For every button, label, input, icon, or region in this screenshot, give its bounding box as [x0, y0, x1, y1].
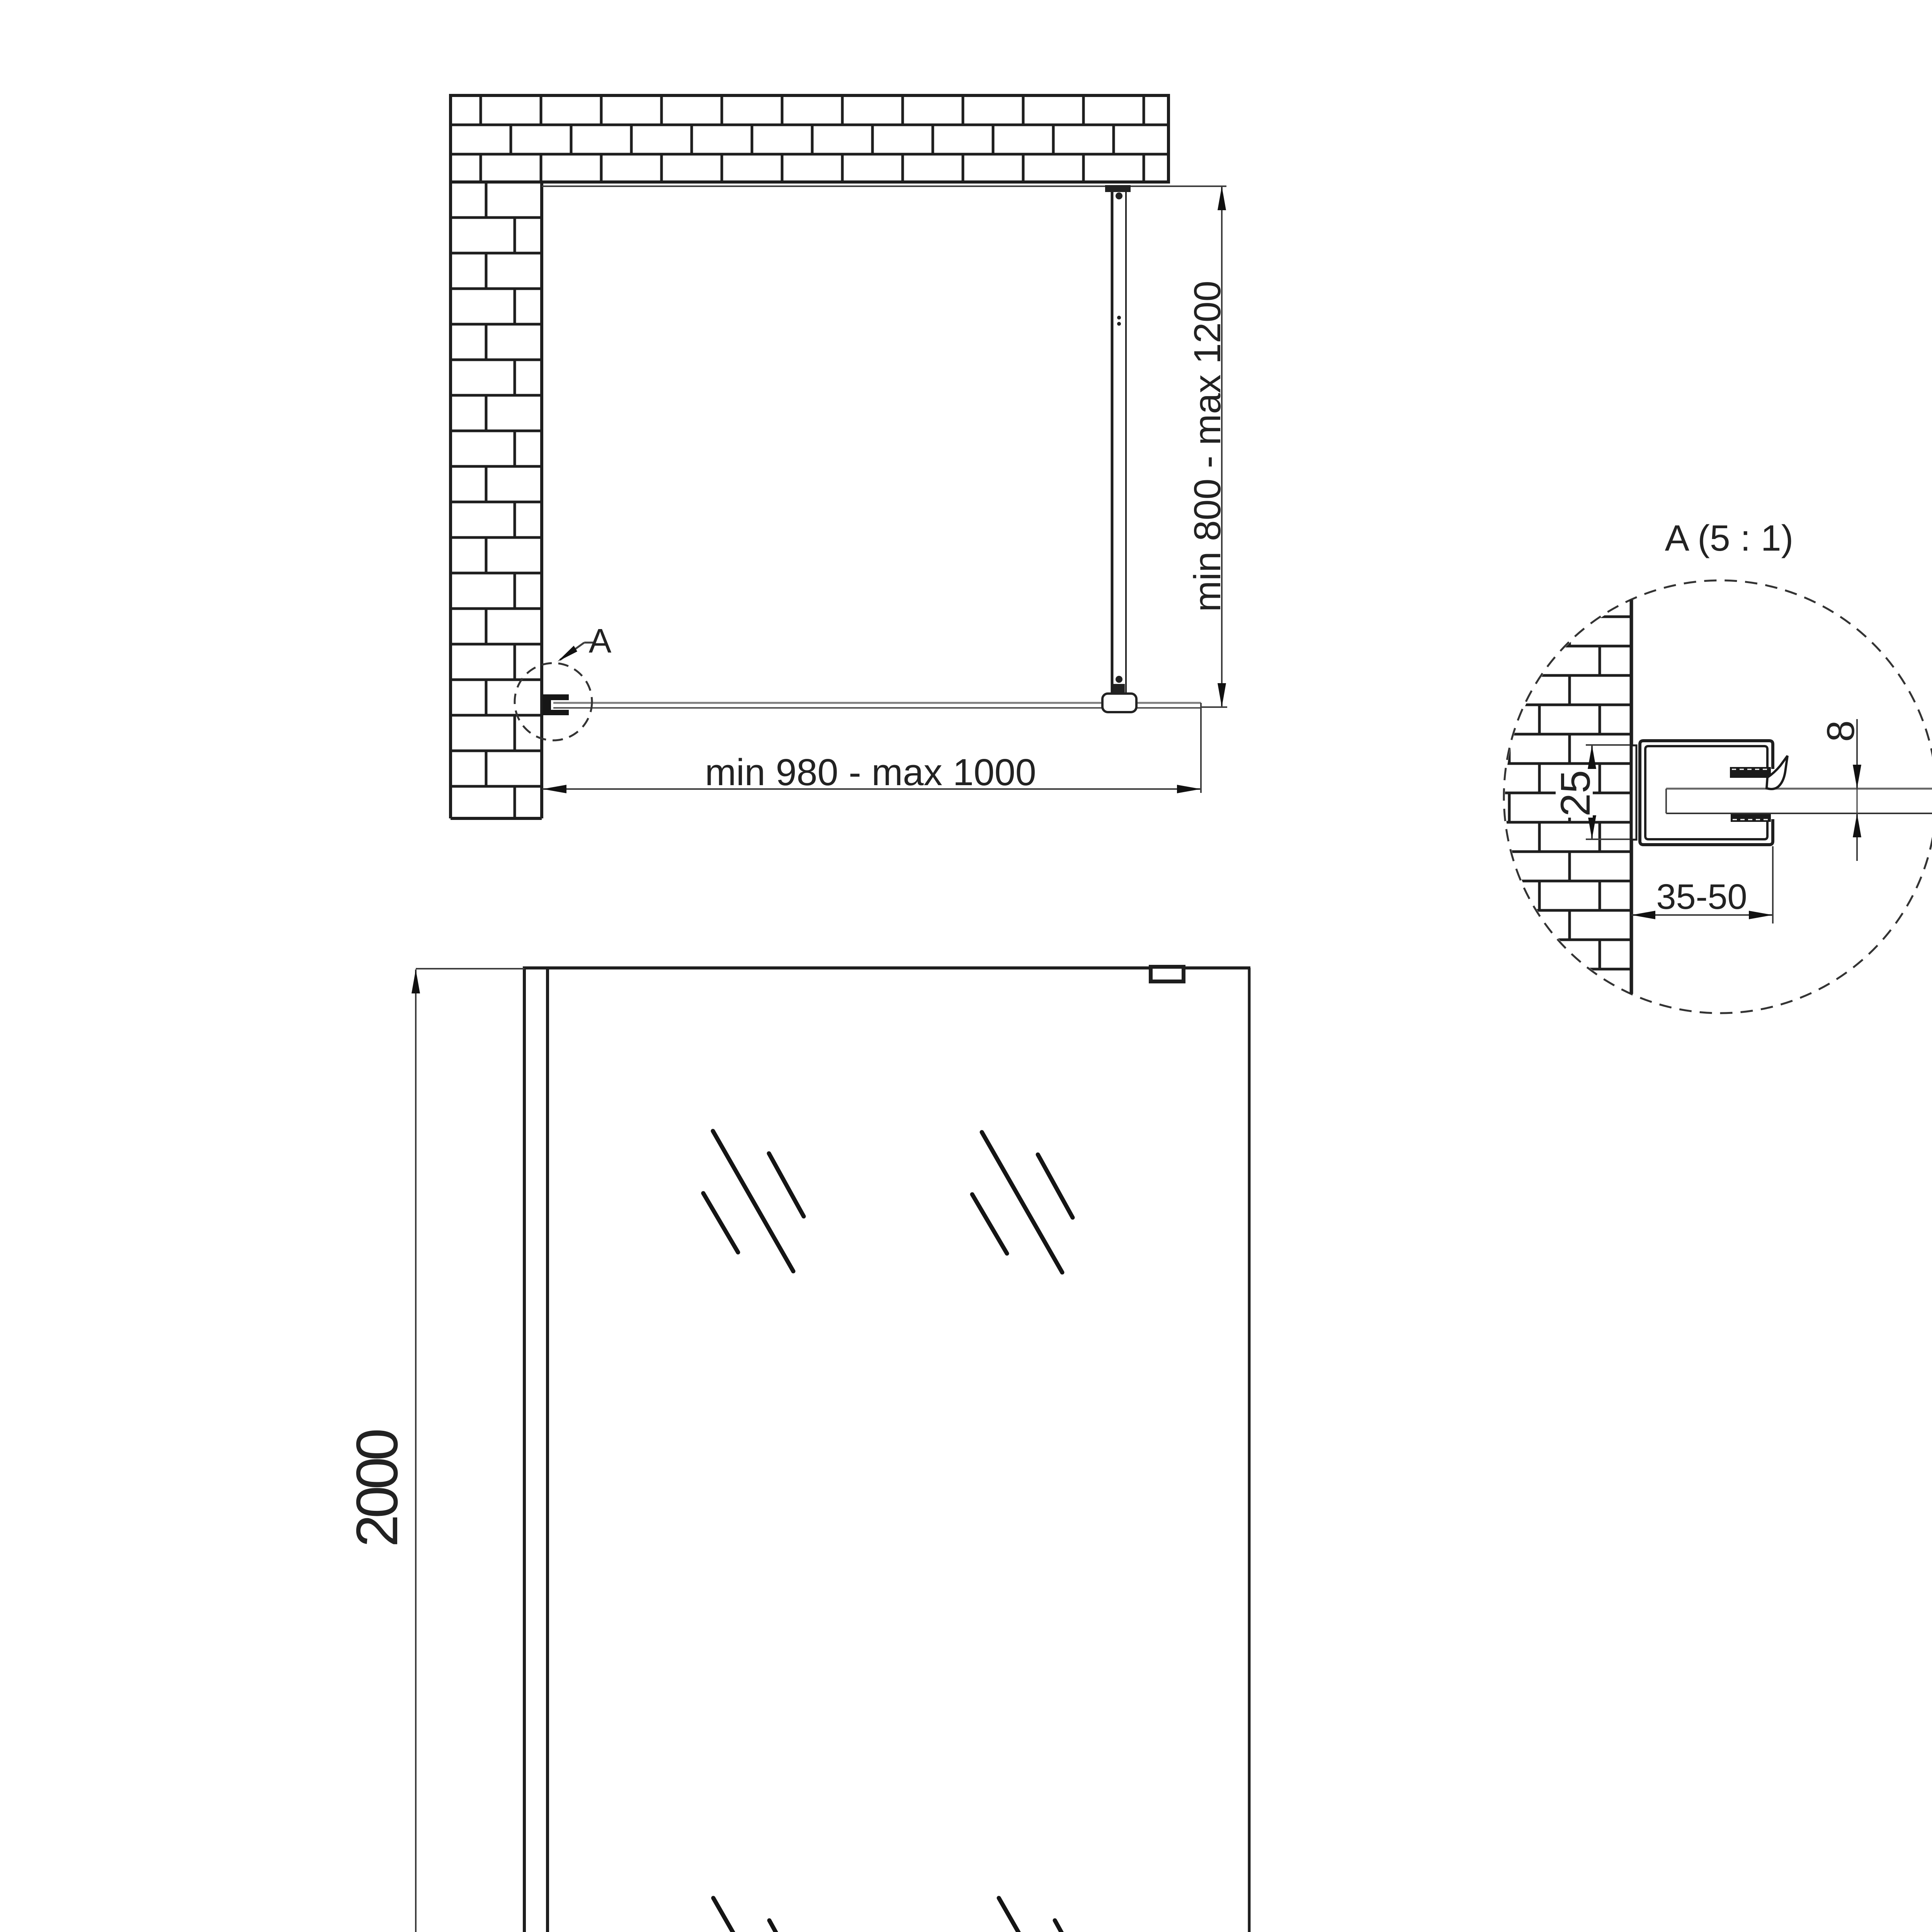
- svg-text:min 800 - max 1200: min 800 - max 1200: [1186, 281, 1228, 612]
- svg-text:A: A: [589, 622, 612, 660]
- svg-text:25: 25: [1552, 770, 1599, 816]
- svg-text:min 980 - max 1000: min 980 - max 1000: [705, 751, 1036, 793]
- svg-text:A (5 : 1): A (5 : 1): [1665, 518, 1794, 559]
- svg-text:8: 8: [1819, 720, 1862, 742]
- svg-text:35-50: 35-50: [1656, 877, 1747, 917]
- svg-text:2000: 2000: [344, 1430, 410, 1547]
